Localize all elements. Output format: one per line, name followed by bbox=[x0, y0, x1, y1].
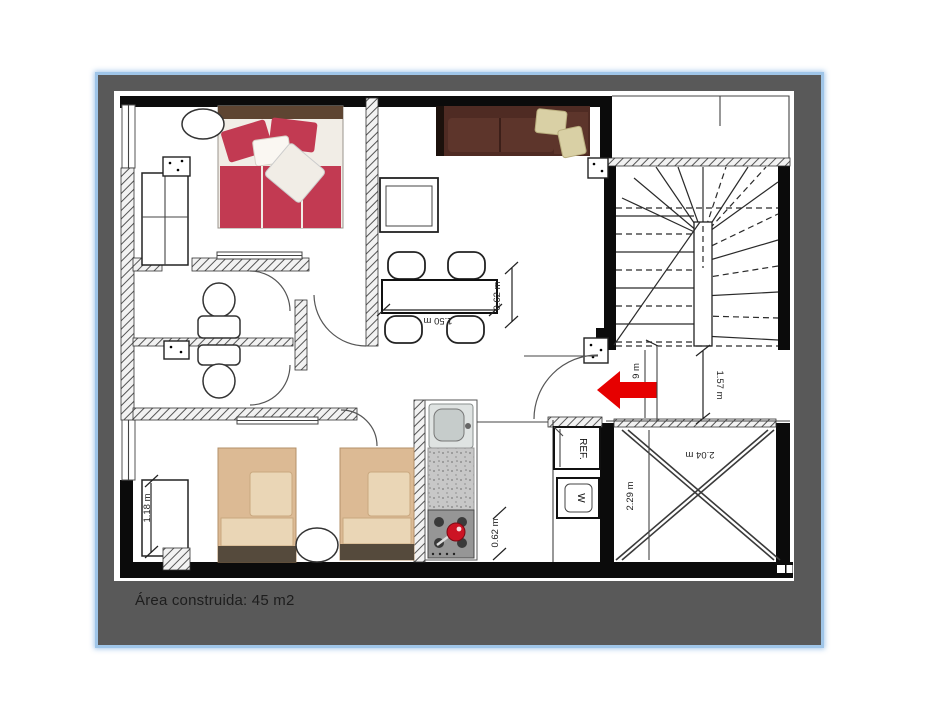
duct-box bbox=[164, 341, 189, 359]
wall-gap bbox=[787, 565, 793, 573]
double-bed-icon bbox=[218, 106, 343, 228]
area-caption: Área construida: 45 m2 bbox=[135, 592, 294, 609]
junction-box bbox=[584, 338, 608, 363]
dim-entry: 9 m bbox=[631, 363, 642, 379]
wall-gap bbox=[777, 565, 785, 573]
dim-dining-length: 1.50 m bbox=[423, 315, 452, 326]
fridge-label: REF. bbox=[577, 438, 588, 460]
washer-label: W bbox=[575, 493, 586, 503]
kitchen-counter-icon bbox=[428, 448, 474, 510]
fridge-icon bbox=[554, 427, 600, 469]
dim-landing: 1.57 m bbox=[714, 370, 725, 399]
dining-table-icon bbox=[382, 280, 497, 313]
single-bed-icon bbox=[340, 448, 414, 560]
duct-box bbox=[163, 548, 190, 570]
chair-icon bbox=[388, 252, 425, 279]
nightstand-icon bbox=[182, 109, 224, 139]
kitchen-unit bbox=[425, 400, 477, 560]
duct-box bbox=[163, 157, 190, 176]
dim-closet: 1.18 m bbox=[142, 493, 153, 522]
chair-icon bbox=[448, 252, 485, 279]
left-wall bbox=[121, 105, 135, 480]
chair-icon bbox=[385, 316, 422, 343]
wardrobe-icon bbox=[142, 173, 188, 265]
desk-icon bbox=[380, 178, 438, 232]
sofa-icon bbox=[436, 106, 590, 158]
side-table-icon bbox=[296, 528, 338, 562]
dim-patio-width: 2.04 m bbox=[685, 449, 714, 460]
dim-kitchen: 0.62 m bbox=[490, 518, 501, 547]
junction-box bbox=[588, 158, 608, 178]
kitchen-sink-icon bbox=[429, 404, 473, 448]
dim-patio-depth: 2.29 m bbox=[625, 481, 636, 510]
single-bed-icon bbox=[218, 448, 296, 562]
dim-dining-width: 0.62 m bbox=[492, 281, 503, 310]
stove-icon bbox=[428, 510, 474, 558]
